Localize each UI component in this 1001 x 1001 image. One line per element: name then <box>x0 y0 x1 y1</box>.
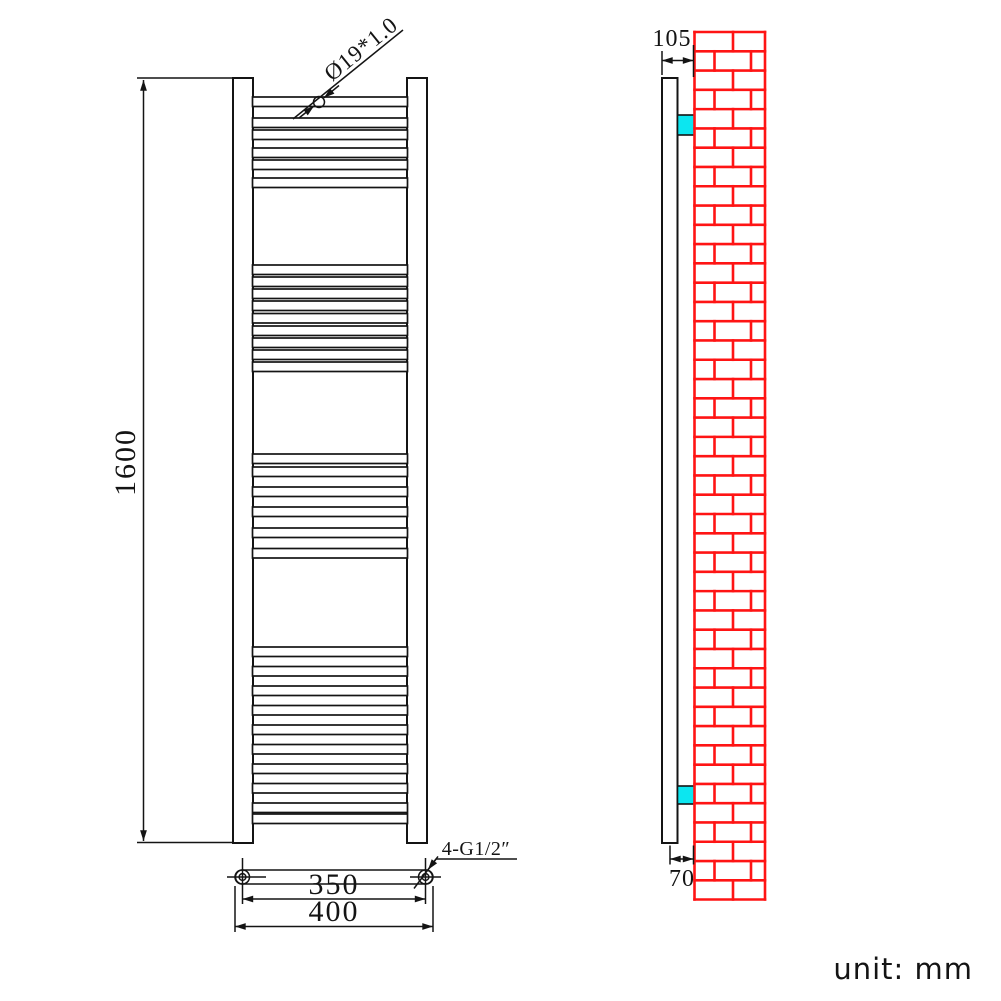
rung <box>253 467 408 477</box>
bottom-offset-dim-label: 70 <box>669 866 695 892</box>
rung <box>253 338 408 348</box>
rung <box>253 118 408 128</box>
rung <box>253 160 408 170</box>
rung <box>253 706 408 716</box>
radiator-side-profile <box>662 78 678 843</box>
rung <box>253 784 408 794</box>
rung <box>253 289 408 299</box>
rung-group <box>253 97 408 824</box>
technical-drawing-page: 1600 Ø19*1.0 350 <box>0 0 1001 1001</box>
wall-bracket-top <box>678 115 695 135</box>
depth-dimension: 105 <box>653 26 694 77</box>
rung <box>253 277 408 287</box>
rung <box>253 814 408 824</box>
rung <box>253 487 408 497</box>
rung <box>253 314 408 324</box>
towel-radiator-drawing: 1600 Ø19*1.0 350 <box>0 0 1001 1001</box>
left-column-tube <box>233 78 253 843</box>
rung <box>253 667 408 677</box>
rung <box>253 362 408 372</box>
diameter-callout-label: Ø19*1.0 <box>319 12 402 86</box>
brick-wall <box>695 32 766 900</box>
rung <box>253 764 408 774</box>
rung <box>253 265 408 275</box>
rung <box>253 130 408 140</box>
rung <box>253 148 408 158</box>
wall-bracket-bottom <box>678 786 695 804</box>
rung <box>253 549 408 559</box>
rung <box>253 178 408 188</box>
height-dimension: 1600 <box>109 78 234 843</box>
connection-callout-label: 4-G1/2″ <box>442 838 511 860</box>
rung <box>253 97 408 107</box>
rung <box>253 686 408 696</box>
wall-offset-dimension: 70 <box>669 846 695 893</box>
rung <box>253 647 408 657</box>
connection-callout: 4-G1/2″ <box>414 838 517 889</box>
rung <box>253 507 408 517</box>
height-dim-label: 1600 <box>109 428 142 496</box>
side-view: 105 70 <box>653 26 766 900</box>
depth-dim-label: 105 <box>653 26 692 52</box>
rung <box>253 350 408 360</box>
rung <box>253 528 408 538</box>
width-dim-label: 400 <box>309 895 360 928</box>
right-column-tube <box>407 78 427 843</box>
rung <box>253 454 408 464</box>
rung <box>253 803 408 813</box>
rung <box>253 745 408 755</box>
leader-arrow <box>428 856 438 869</box>
rung <box>253 301 408 311</box>
front-view: 1600 Ø19*1.0 350 <box>109 12 517 932</box>
rung <box>253 725 408 735</box>
unit-note: unit: mm <box>833 952 973 986</box>
rung <box>253 326 408 336</box>
